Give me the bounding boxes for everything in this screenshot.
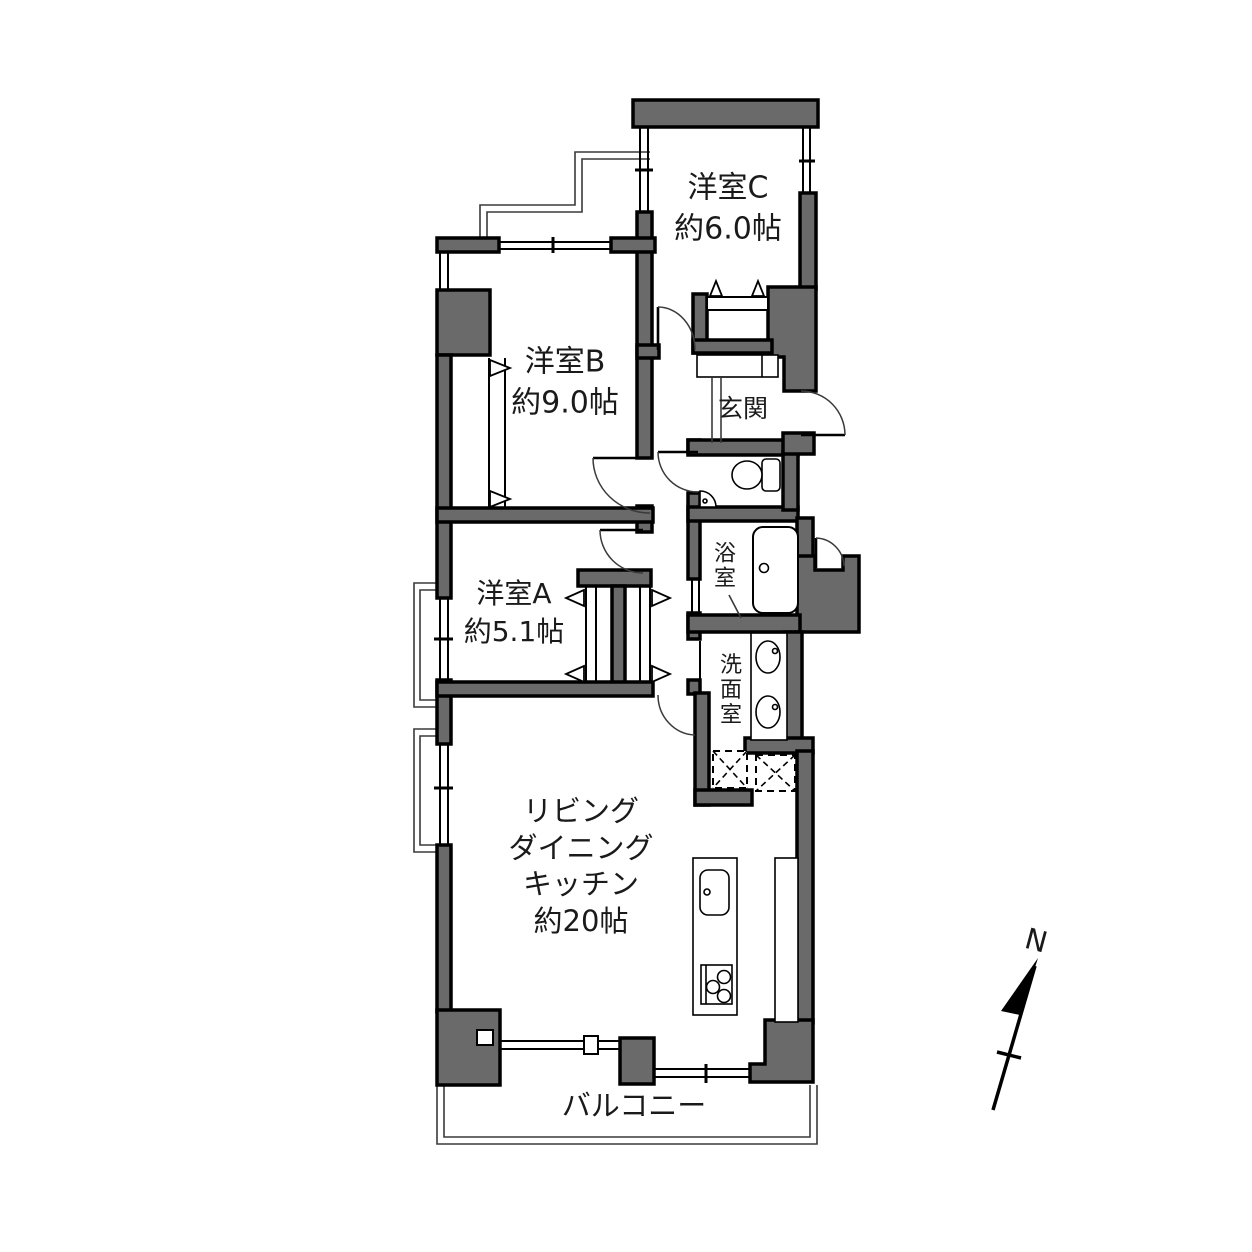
shoe-cabinet [697,355,778,377]
meter-box-door [816,538,844,568]
toilet-fixture [700,459,780,507]
entrance-door [801,391,845,435]
room-b-name: 洋室B [511,343,619,384]
room-b-label: 洋室B 約9.0帖 [511,343,619,424]
living-label-line1: リビング [508,793,653,830]
bathroom-label: 浴室 [711,541,733,591]
room-c-closet [707,281,768,310]
living-door [658,695,695,735]
window-ledge-room-a [414,583,437,707]
toilet-door [658,452,698,492]
kitchen-island [693,858,737,1015]
service-balcony-outline [480,152,650,238]
window-ledge-living [414,729,437,852]
washroom-label: 洗面室 [717,653,739,728]
room-a-door [600,530,643,573]
living-label-line3: キッチン [508,866,653,903]
floor-plan: 洋室C 約6.0帖 洋室B 約9.0帖 洋室A 約5.1帖 リビング ダイニング… [0,0,1252,1252]
bathtub [753,527,798,613]
room-a-size: 約5.1帖 [464,613,565,651]
washroom-vanity [751,633,787,740]
room-c-door [658,307,695,350]
room-c-label: 洋室C 約6.0帖 [674,169,782,250]
entrance-label: 玄関 [718,392,768,426]
room-c-size: 約6.0帖 [674,209,782,250]
north-arrow [993,958,1038,1110]
washer-space [713,751,747,788]
floor-plan-drawing [0,0,1252,1252]
living-label: リビング ダイニング キッチン 約20帖 [508,793,653,939]
room-a-name: 洋室A [464,575,565,613]
room-b-closet [489,358,510,507]
kitchen-counter [775,858,798,1022]
living-label-line2: ダイニング [508,829,653,866]
room-c-name: 洋室C [674,169,782,210]
room-a-label: 洋室A 約5.1帖 [464,575,565,651]
refrigerator-space [756,755,795,791]
living-label-size: 約20帖 [508,903,653,940]
room-b-size: 約9.0帖 [511,383,619,424]
balcony-label: バルコニー [562,1086,706,1125]
